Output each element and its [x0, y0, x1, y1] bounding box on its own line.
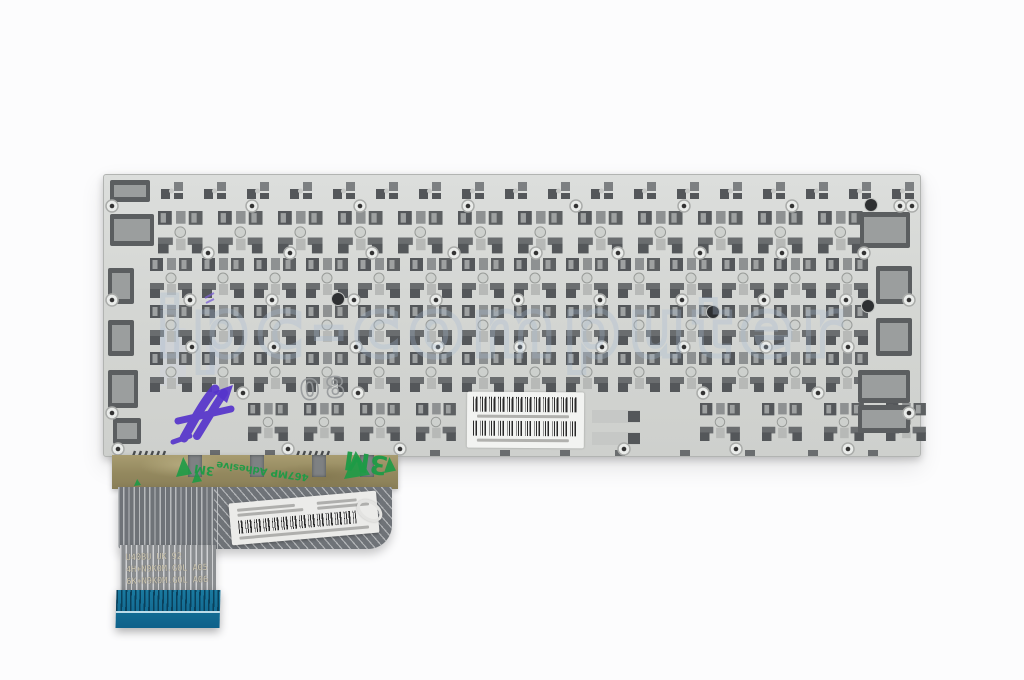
- barcode-bottom: [473, 421, 577, 437]
- cable-print-line: 6K+N9K0M.G0L A06: [126, 574, 208, 588]
- barcode-bottom-microtext: [477, 439, 569, 443]
- serial-barcode-label: [467, 392, 584, 449]
- fpc-vertical-traces: [118, 487, 218, 549]
- handwritten-speck: [205, 293, 214, 303]
- barcode-top: [473, 397, 577, 413]
- ribbon-cable-tail: U40BU UK 92 4H+N9K0M.G0L A05 6K+N9K0M.G0…: [120, 545, 216, 595]
- cable-print-block: U40BU UK 92 4H+N9K0M.G0L A05 6K+N9K0M.G0…: [126, 550, 209, 588]
- photo-canvas: ipc-computer 08 3M 467MP Adhesive 3M: [0, 0, 1024, 680]
- adhesive-tape-strip: 3M 467MP Adhesive 3M: [112, 455, 398, 489]
- tape-green-mark: [134, 479, 141, 486]
- plate-tab: [312, 455, 326, 477]
- connector-highlight-line: [116, 611, 220, 613]
- cable-connector-stiffener: [116, 590, 221, 628]
- barcode-top-microtext: [477, 415, 569, 419]
- connector-contact-stripes: [116, 590, 221, 611]
